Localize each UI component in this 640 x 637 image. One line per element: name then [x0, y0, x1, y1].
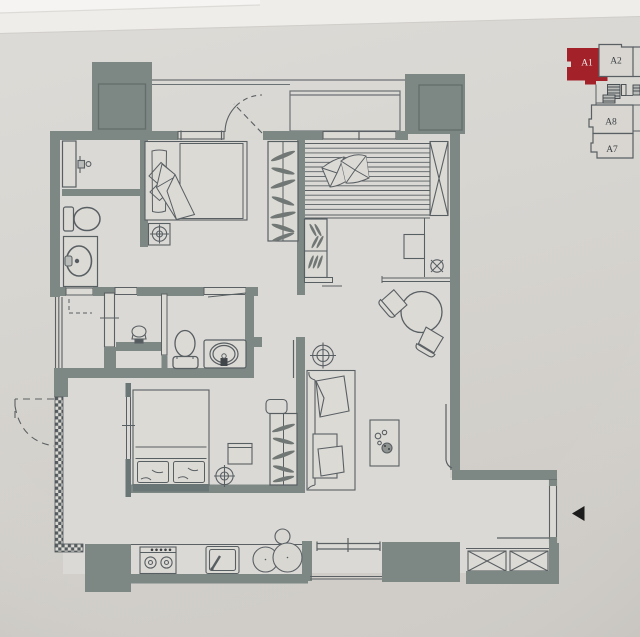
svg-text:A1: A1 — [581, 59, 593, 69]
svg-text:A2: A2 — [610, 57, 622, 67]
svg-text:A7: A7 — [606, 145, 618, 155]
svg-text:A8: A8 — [605, 118, 617, 128]
